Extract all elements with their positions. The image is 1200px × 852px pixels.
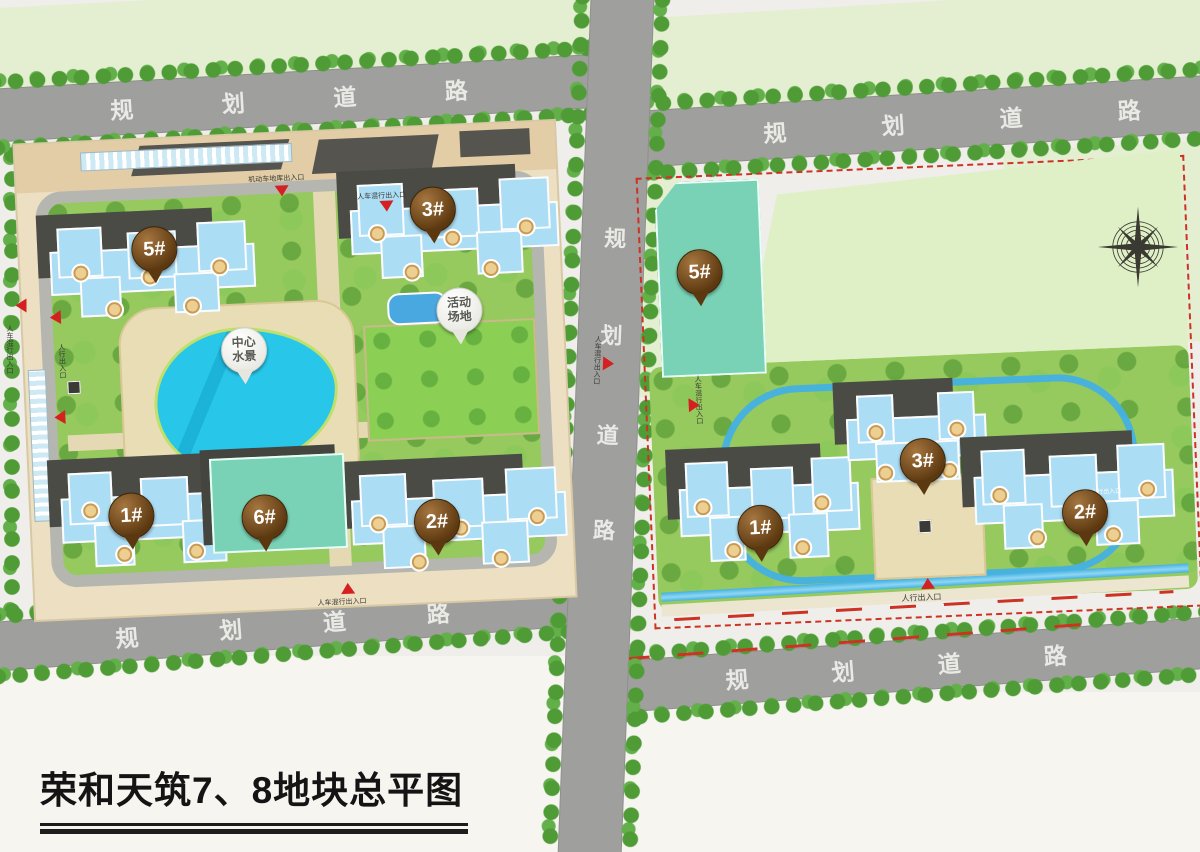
poi-pin-label: 中心水景 <box>229 336 258 365</box>
plot-7: 机动车地库出入口 人车混行出入口 人车混行出入口 人行出入口 中心水景 活动场地… <box>15 121 576 620</box>
entrance-marker <box>341 583 355 595</box>
unit-badge <box>491 548 511 568</box>
entrance-marker <box>921 578 935 590</box>
guard-booth <box>67 381 81 395</box>
building-roof <box>459 128 530 157</box>
building-pin-5: 5# <box>676 248 724 307</box>
road-name-char: 规 <box>109 91 134 126</box>
building-pin-label: 5# <box>130 225 178 273</box>
building-pin-label: 1# <box>736 504 784 552</box>
page-title: 荣和天筑7、8地块总平图 <box>40 760 468 814</box>
building-pin-3: 3# <box>409 186 458 245</box>
road-name-char: 道 <box>936 644 961 680</box>
building-pin-6: 6# <box>241 494 290 553</box>
road-name-char: 路 <box>444 71 469 106</box>
road-name-char: 道 <box>998 98 1023 133</box>
building-pin-label: 2# <box>413 498 461 546</box>
title-underline <box>40 829 468 834</box>
site-plan-canvas: 规 划 道 路 规 划 道 路 规 划 道 路 规 划 <box>0 0 1200 852</box>
entrance-label-pedestrian: 人行出入口 <box>56 343 68 378</box>
compass-rose-icon <box>1096 205 1180 289</box>
building-pin-label: 6# <box>241 494 289 542</box>
unit-badge <box>70 263 90 283</box>
building-pin-5: 5# <box>130 225 179 284</box>
building-pin-2: 2# <box>413 498 462 557</box>
road-name-char: 划 <box>218 610 244 646</box>
road-name-char: 规 <box>724 660 749 696</box>
entrance-label-pedestrian: 人行出入口 <box>901 591 941 604</box>
entrance-marker <box>379 200 393 212</box>
road-name-char: 规 <box>762 113 787 148</box>
road-name-char: 划 <box>600 318 623 351</box>
road-name-char: 规 <box>604 221 627 254</box>
guard-booth <box>918 520 932 534</box>
building-pin-label: 2# <box>1061 488 1109 536</box>
building-pin-label: 5# <box>676 248 724 296</box>
unit-badge <box>1028 528 1048 548</box>
entrance-marker <box>54 410 66 424</box>
road-name-char: 路 <box>593 513 616 546</box>
road-middle-vertical: 规 划 道 路 人车混行出入口 <box>558 0 654 852</box>
building-pin-1: 1# <box>107 492 156 551</box>
road-name-char: 路 <box>1042 636 1067 672</box>
road-name-char: 道 <box>332 78 357 113</box>
entrance-marker <box>16 299 27 313</box>
poi-pin-activity-ground: 活动场地 <box>435 286 484 345</box>
building-pin-label: 1# <box>107 492 155 540</box>
road-name-char: 规 <box>114 619 140 655</box>
title-block: 荣和天筑7、8地块总平图 <box>40 760 468 834</box>
entrance-marker <box>275 185 289 197</box>
entrance-marker <box>688 398 700 412</box>
road-name-char: 划 <box>221 84 246 119</box>
poi-pin-label: 活动场地 <box>445 296 474 325</box>
unit-badge <box>792 538 812 558</box>
entrance-label-mixed: 人车混行出入口 <box>4 325 14 374</box>
unit-badge <box>81 500 101 520</box>
entrance-label-mixed: 人车混行出入口 <box>591 335 603 384</box>
road-name-char: 道 <box>596 418 619 451</box>
unit-badge <box>876 463 896 483</box>
building-pin-2: 2# <box>1061 488 1109 547</box>
building-pin-1: 1# <box>736 504 784 563</box>
road-name-char: 划 <box>830 652 855 688</box>
entrance-marker <box>50 310 62 324</box>
title-underline <box>40 823 468 826</box>
building-pin-label: 3# <box>899 437 947 485</box>
building-pin-3: 3# <box>899 437 947 496</box>
building-pin-label: 3# <box>409 186 457 234</box>
road-name-char: 划 <box>880 106 905 141</box>
road-name-char: 路 <box>1117 91 1142 126</box>
unit-badge <box>367 224 387 244</box>
poi-pin-center-water: 中心水景 <box>220 326 269 385</box>
entrance-marker <box>603 356 615 370</box>
